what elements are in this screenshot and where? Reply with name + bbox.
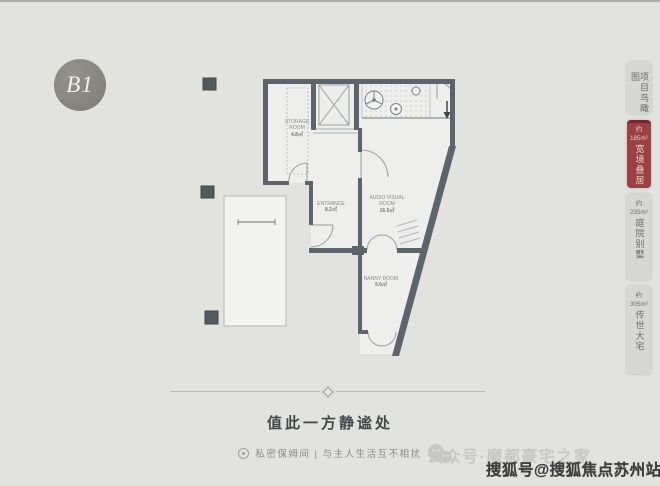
plan-type-tabs: 项目鸟瞰图 约 185m² 宽境叠居 约 235m² 庭院别墅 约 305m² …	[627, 62, 651, 374]
room-label-storage: STORAGE ROOM 4.8㎡	[277, 119, 317, 138]
seal-icon	[238, 448, 249, 459]
ornament-divider	[170, 387, 485, 396]
fan-icon	[365, 91, 383, 109]
caption-subtitle: 私密保姆间 | 与主人生活互不相扰	[255, 446, 421, 460]
caption-title: 值此一方静谧处	[0, 412, 660, 433]
tab-305sqm-grand-mansion[interactable]: 约 305m² 传世大宅	[627, 286, 651, 374]
car-lift-platform	[224, 196, 286, 326]
column-markers	[201, 78, 218, 324]
tab-project-aerial-view[interactable]: 项目鸟瞰图	[627, 62, 651, 114]
room-label-entrance: ENTRANCE 8.2㎡	[311, 201, 351, 214]
tab-235sqm-courtyard-villa[interactable]: 约 235m² 庭院别墅	[627, 194, 651, 280]
sohu-watermark: 搜狐号@搜狐焦点苏州站	[486, 458, 660, 480]
room-label-nanny: NANNY ROOM 9.6㎡	[359, 276, 403, 289]
diamond-ornament-icon	[322, 386, 333, 397]
tab-185sqm-stacked-villa[interactable]: 约 185m² 宽境叠居	[627, 120, 651, 188]
wechat-icon	[427, 443, 454, 465]
brochure-page: B1	[0, 0, 660, 486]
room-label-theater: AUDIO VISUAL ROOM 16.5㎡	[366, 195, 408, 214]
